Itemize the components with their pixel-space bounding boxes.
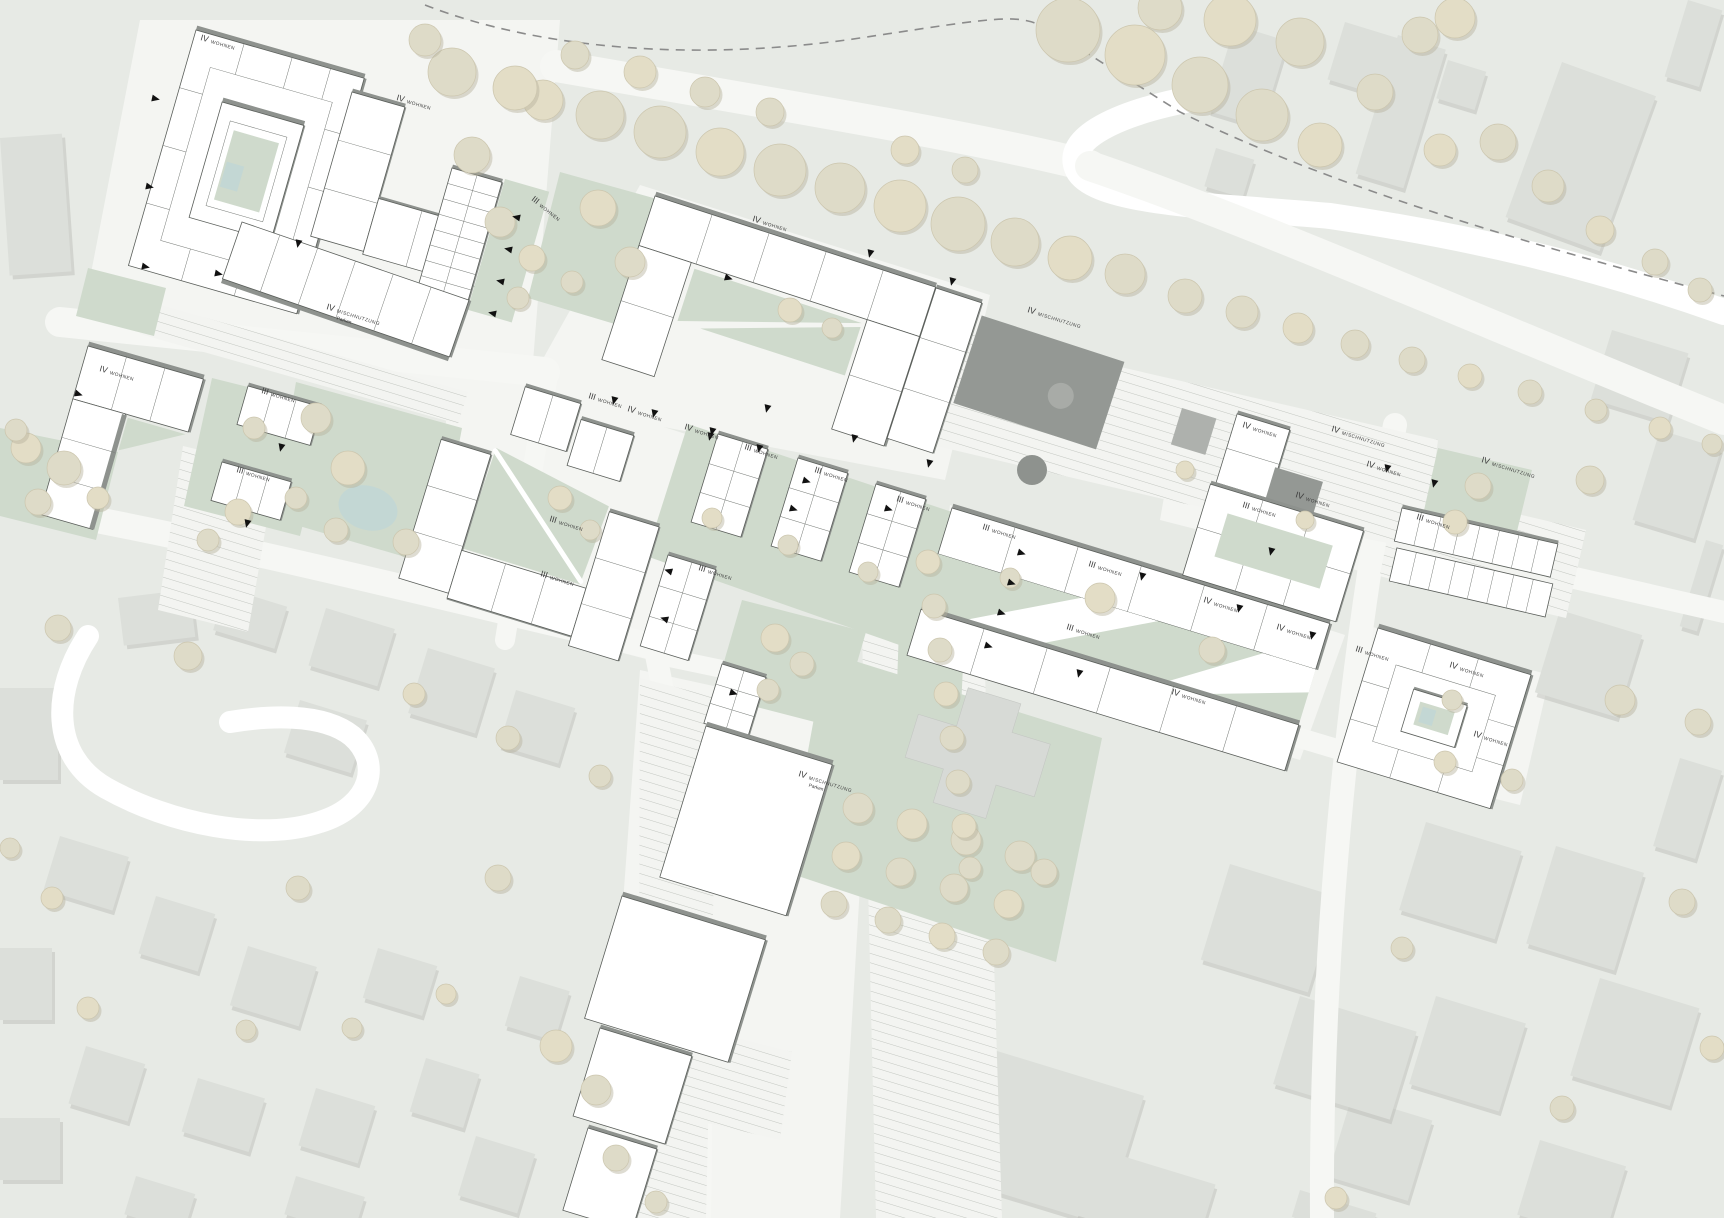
- tree: [1204, 0, 1259, 49]
- context-building: [408, 1058, 482, 1133]
- tree: [1685, 709, 1714, 738]
- context-building: [1663, 0, 1724, 92]
- tree: [1435, 0, 1478, 41]
- tree: [589, 765, 614, 790]
- context-building: [67, 1046, 148, 1126]
- tree: [576, 91, 627, 142]
- tree: [1669, 889, 1698, 918]
- tree: [991, 218, 1042, 269]
- tree: [952, 157, 981, 186]
- context-building: [229, 946, 320, 1031]
- context-building: [180, 1078, 267, 1157]
- context-building: [1398, 822, 1525, 944]
- tree: [1550, 1096, 1577, 1123]
- tree: [1283, 313, 1316, 346]
- context-building: [123, 1176, 198, 1218]
- plaza-circle: [1017, 455, 1047, 485]
- tree: [436, 984, 459, 1007]
- site-plan-drawing: IVWOHNENIVWOHNENIIIWOHNENIVMISCHNUTZUNGP…: [0, 0, 1724, 1218]
- tree: [1236, 89, 1291, 144]
- tree: [1424, 134, 1459, 169]
- tree: [1341, 330, 1372, 361]
- context-building: [307, 608, 397, 691]
- context-building: [1525, 846, 1647, 975]
- tree: [45, 615, 74, 644]
- tree: [485, 865, 514, 894]
- tree: [1105, 254, 1148, 297]
- tree: [540, 1030, 575, 1065]
- tree: [1480, 124, 1519, 163]
- tree: [1298, 123, 1345, 170]
- context-building: [1074, 1148, 1218, 1218]
- context-building: [297, 1088, 378, 1168]
- tree: [174, 642, 205, 673]
- tree: [931, 197, 988, 254]
- tree: [1518, 380, 1545, 407]
- tree: [1168, 279, 1205, 316]
- tree: [1576, 466, 1607, 497]
- context-building: [137, 896, 218, 976]
- context-building: [362, 948, 441, 1021]
- context-building: [0, 133, 75, 279]
- tree: [1458, 364, 1485, 391]
- tree: [1036, 0, 1103, 65]
- tree: [754, 144, 809, 199]
- site-plan-canvas: IVWOHNENIVWOHNENIIIWOHNENIVMISCHNUTZUNGP…: [0, 0, 1724, 1218]
- context-building: [1272, 996, 1420, 1124]
- tree: [815, 163, 868, 216]
- context-building: [1652, 758, 1724, 864]
- tree: [342, 1018, 365, 1041]
- context-building: [1408, 996, 1529, 1116]
- tree: [1700, 1036, 1724, 1063]
- context-building: [1569, 978, 1702, 1111]
- context-building: [457, 1136, 538, 1218]
- tree: [0, 838, 23, 861]
- tree: [236, 1020, 259, 1043]
- context-building: [0, 1118, 63, 1184]
- context-building: [1504, 62, 1659, 256]
- tree: [1105, 25, 1168, 88]
- context-building: [0, 948, 55, 1024]
- tree: [696, 128, 747, 179]
- tree: [77, 997, 102, 1022]
- context-building: [1516, 1140, 1629, 1218]
- context-building: [283, 1176, 368, 1218]
- building-label: IVMISCHNUTZUNG: [1026, 304, 1082, 330]
- tree: [286, 876, 313, 903]
- tree: [1226, 296, 1261, 331]
- tree: [1399, 347, 1428, 376]
- tree: [1048, 236, 1095, 283]
- tree: [634, 106, 689, 161]
- tree: [874, 180, 929, 235]
- tree: [1391, 937, 1416, 962]
